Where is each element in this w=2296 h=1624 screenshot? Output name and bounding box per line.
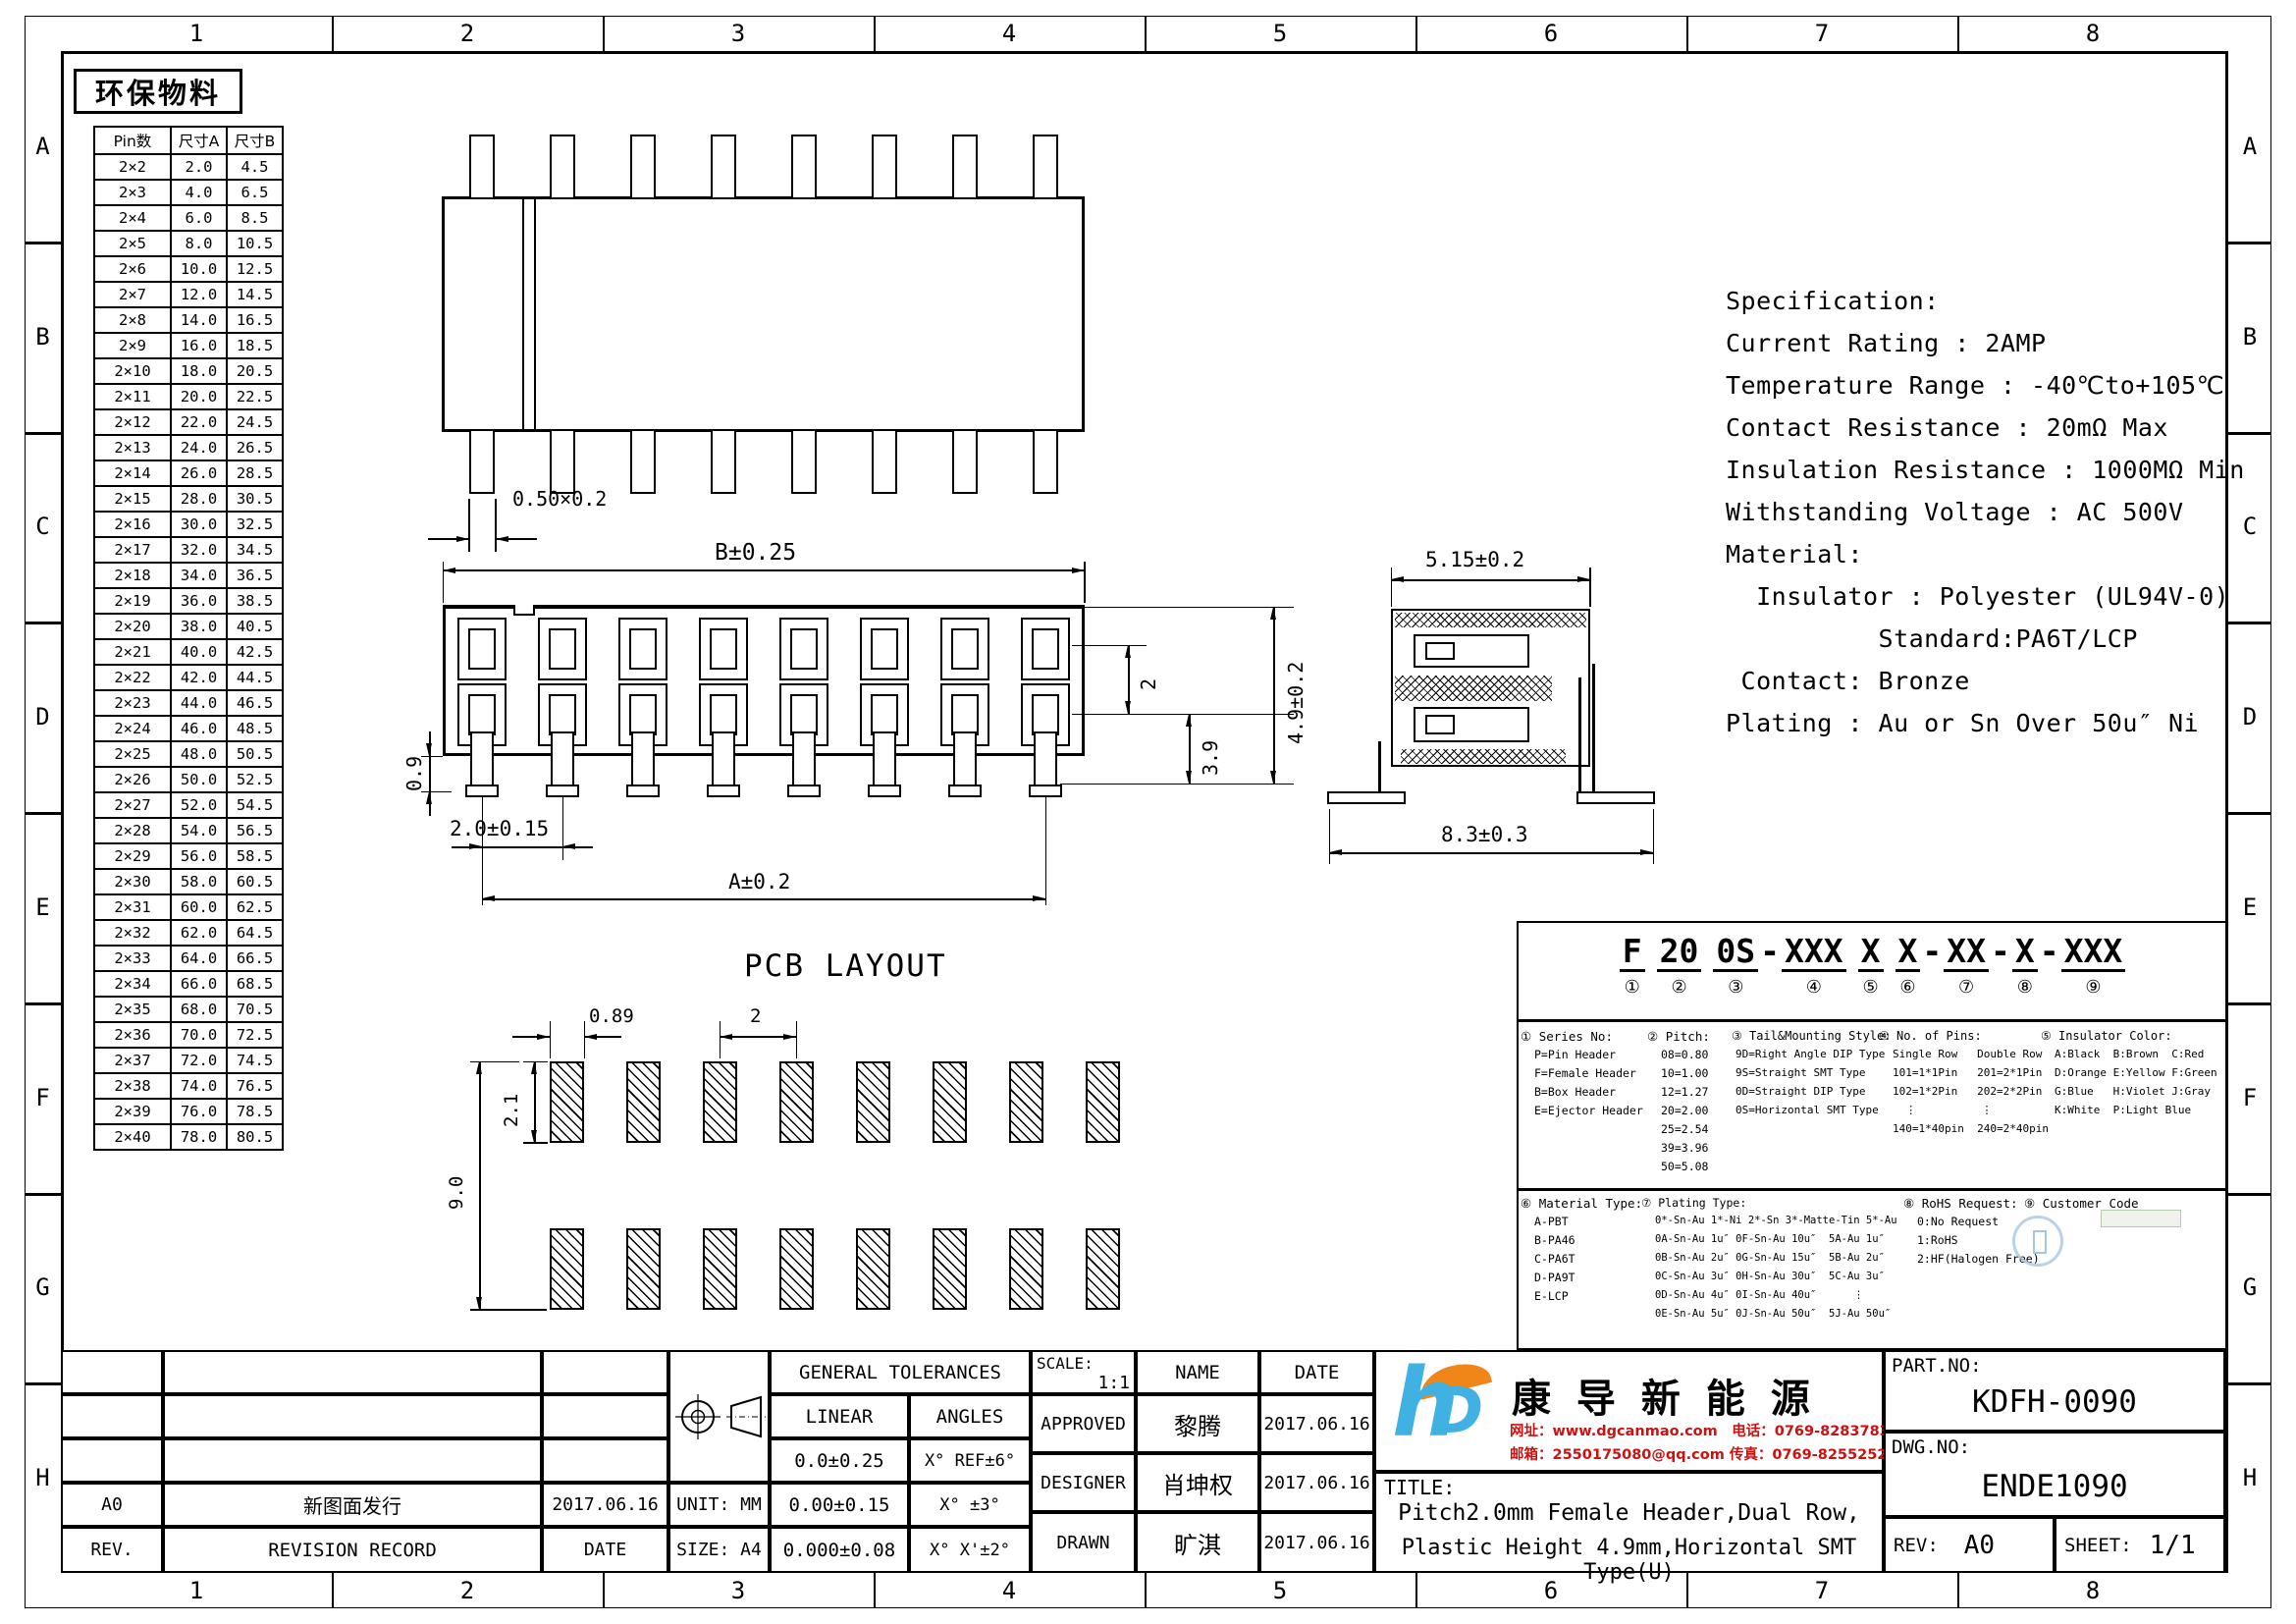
revision-date: 2017.06.16 bbox=[542, 1483, 668, 1527]
table-row: 2×2140.042.5 bbox=[94, 639, 283, 665]
legend-pitch-line-4: 25=2.54 bbox=[1661, 1122, 1708, 1136]
top-view-pin bbox=[630, 429, 656, 494]
dim-b: B±0.25 bbox=[715, 540, 796, 566]
table-row: 2×2854.056.5 bbox=[94, 818, 283, 843]
pcb-pad bbox=[550, 1228, 584, 1310]
spec-line-1: Current Rating : 2AMP bbox=[1726, 329, 2275, 371]
zone-row-A: A bbox=[25, 51, 61, 242]
zone-col-2: 2 bbox=[332, 1573, 603, 1608]
socket-opening bbox=[779, 618, 828, 680]
pin-table-cell: 26.5 bbox=[227, 435, 283, 460]
pin-table-cell: 38.0 bbox=[171, 614, 227, 639]
legend-pitch-line-1: 10=1.00 bbox=[1661, 1066, 1708, 1080]
legend-color-line-0: A:Black B:Brown C:Red bbox=[2055, 1048, 2204, 1060]
dwg-no-label: DWG.NO: bbox=[1892, 1436, 1970, 1458]
legend-tail-line-2: 0D=Straight DIP Type bbox=[1735, 1085, 1865, 1098]
table-row: 2×3772.074.5 bbox=[94, 1048, 283, 1073]
dim-side-w: 5.15±0.2 bbox=[1425, 548, 1524, 571]
pin-table-cell: 72.0 bbox=[171, 1048, 227, 1073]
pin-table-cell: 24.0 bbox=[171, 435, 227, 460]
pin-table-header: Pin数 bbox=[94, 127, 171, 154]
pin-table-cell: 16.0 bbox=[171, 333, 227, 358]
zone-col-8: 8 bbox=[1957, 1573, 2228, 1608]
pin-table-cell: 14.5 bbox=[227, 282, 283, 307]
pin-table-cell: 40.0 bbox=[171, 639, 227, 665]
zone-col-3: 3 bbox=[603, 1573, 874, 1608]
socket-opening bbox=[538, 618, 587, 680]
spec-line-10: Plating : Au or Sn Over 50u″ Ni bbox=[1726, 709, 2275, 751]
table-row: 2×3466.068.5 bbox=[94, 971, 283, 997]
pin-table-cell: 6.0 bbox=[171, 205, 227, 231]
pcb-pad bbox=[779, 1061, 814, 1143]
pin-table-cell: 24.5 bbox=[227, 409, 283, 435]
pin-table-cell: 36.0 bbox=[171, 588, 227, 614]
zone-col-6: 6 bbox=[1415, 16, 1686, 51]
pin-dimension-table: Pin数尺寸A尺寸B2×22.04.52×34.06.52×46.08.52×5… bbox=[93, 126, 284, 1151]
pin-table-cell: 12.0 bbox=[171, 282, 227, 307]
pin-table-cell: 46.5 bbox=[227, 690, 283, 716]
part-code-segment: XXX⑨ bbox=[2061, 935, 2126, 998]
pcb-pad bbox=[1009, 1228, 1043, 1310]
spec-line-8: Standard:PA6T/LCP bbox=[1726, 624, 2275, 667]
pcb-pad bbox=[626, 1061, 661, 1143]
pin-table-cell: 2×20 bbox=[94, 614, 171, 639]
table-row: 2×3160.062.5 bbox=[94, 894, 283, 920]
legend-series-line-1: F=Female Header bbox=[1534, 1066, 1636, 1080]
table-row: 2×1936.038.5 bbox=[94, 588, 283, 614]
company-contact-1: 网址：www.dgcanmao.com 电话：0769-82837833 bbox=[1510, 1420, 1899, 1440]
socket-opening bbox=[1021, 618, 1070, 680]
pin-table-cell: 28.0 bbox=[171, 486, 227, 512]
table-row: 2×2344.046.5 bbox=[94, 690, 283, 716]
pin-table-cell: 2×33 bbox=[94, 946, 171, 971]
pcb-pad bbox=[856, 1061, 890, 1143]
front-view-notch bbox=[513, 605, 535, 616]
pin-table-cell: 22.0 bbox=[171, 409, 227, 435]
pcb-pad bbox=[550, 1061, 584, 1143]
zone-tick bbox=[25, 242, 61, 244]
zone-tick bbox=[2228, 812, 2271, 815]
pin-table-cell: 2×35 bbox=[94, 997, 171, 1022]
pcb-layout-title: PCB LAYOUT bbox=[744, 948, 947, 984]
pcb-pad bbox=[1086, 1228, 1120, 1310]
zone-col-7: 7 bbox=[1686, 16, 1957, 51]
top-view-pin bbox=[791, 429, 817, 494]
pin-table-cell: 34.5 bbox=[227, 537, 283, 563]
front-view-pin-foot bbox=[707, 785, 740, 797]
pin-table-cell: 2×16 bbox=[94, 512, 171, 537]
pin-table-cell: 58.0 bbox=[171, 869, 227, 894]
legend-tail-line-0: 9D=Right Angle DIP Type bbox=[1735, 1048, 1885, 1060]
zone-tick bbox=[874, 16, 876, 51]
front-view-pin bbox=[873, 731, 896, 786]
part-code-segment: 20② bbox=[1657, 935, 1702, 998]
revision-header-record: REVISION RECORD bbox=[163, 1527, 542, 1573]
table-row: 2×3670.072.5 bbox=[94, 1022, 283, 1048]
pin-table-cell: 2×32 bbox=[94, 920, 171, 946]
table-row: 2×1324.026.5 bbox=[94, 435, 283, 460]
legend-pins-line-3: ⋮ ⋮ bbox=[1893, 1104, 1992, 1116]
front-view-pin bbox=[712, 731, 735, 786]
legend-material-line-3: D-PA9T bbox=[1534, 1271, 1575, 1284]
part-code-segment: 0S③ bbox=[1713, 935, 1758, 998]
legend-pitch-line-3: 20=2.00 bbox=[1661, 1104, 1708, 1117]
pin-table-cell: 58.5 bbox=[227, 843, 283, 869]
pin-table-cell: 60.5 bbox=[227, 869, 283, 894]
company-contact-2: 邮箱：2550175080@qq.com 传真：0769-82552527 bbox=[1510, 1443, 1896, 1464]
spec-line-3: Contact Resistance : 20mΩ Max bbox=[1726, 413, 2275, 456]
pin-table-cell: 60.0 bbox=[171, 894, 227, 920]
zone-tick bbox=[1957, 16, 1959, 51]
spec-line-9: Contact: Bronze bbox=[1726, 667, 2275, 709]
pin-table-cell: 8.5 bbox=[227, 205, 283, 231]
general-tolerances-title: GENERAL TOLERANCES bbox=[770, 1350, 1031, 1394]
pin-table-header: 尺寸A bbox=[171, 127, 227, 154]
pin-table-cell: 2×15 bbox=[94, 486, 171, 512]
dim-pad-span: 9.0 bbox=[446, 1176, 467, 1210]
legend-pitch-line-0: 08=0.80 bbox=[1661, 1048, 1708, 1061]
legend-series-header: ① Series No: bbox=[1521, 1029, 1613, 1044]
legend-pitch-line-2: 12=1.27 bbox=[1661, 1085, 1708, 1099]
top-view-pin bbox=[469, 429, 495, 494]
zone-tick bbox=[1686, 16, 1688, 51]
top-view-pin bbox=[469, 135, 495, 199]
pin-table-cell: 48.5 bbox=[227, 716, 283, 741]
pin-table-cell: 4.5 bbox=[227, 154, 283, 180]
revision-record: 新图面发行 bbox=[163, 1483, 542, 1527]
table-row: 2×1426.028.5 bbox=[94, 460, 283, 486]
front-view-pin-foot bbox=[546, 785, 579, 797]
zone-row-G: G bbox=[2228, 1193, 2271, 1383]
zone-col-5: 5 bbox=[1145, 16, 1415, 51]
table-row: 2×46.08.5 bbox=[94, 205, 283, 231]
zone-tick bbox=[332, 1573, 334, 1608]
zone-tick bbox=[2228, 1193, 2271, 1196]
pin-table-cell: 30.5 bbox=[227, 486, 283, 512]
legend-plating-line-5: 0E-Sn-Au 5u″ 0J-Sn-Au 50u″ 5J-Au 50u″ bbox=[1655, 1308, 1891, 1320]
pin-table-cell: 44.5 bbox=[227, 665, 283, 690]
pin-table-cell: 10.5 bbox=[227, 231, 283, 256]
zone-tick bbox=[1145, 1573, 1147, 1608]
pin-table-cell: 2×26 bbox=[94, 767, 171, 792]
part-no-value: KDFH-0090 bbox=[1884, 1384, 2225, 1420]
pin-table-cell: 2×11 bbox=[94, 384, 171, 409]
zone-col-3: 3 bbox=[603, 16, 874, 51]
front-view-pin-foot bbox=[626, 785, 660, 797]
legend-plating-line-3: 0C-Sn-Au 3u″ 0H-Sn-Au 30u″ 5C-Au 3u″ bbox=[1655, 1271, 1885, 1282]
pin-table-cell: 28.5 bbox=[227, 460, 283, 486]
zone-row-E: E bbox=[2228, 812, 2271, 1002]
pin-table-cell: 2×38 bbox=[94, 1073, 171, 1099]
pin-table-cell: 70.5 bbox=[227, 997, 283, 1022]
top-view-pin bbox=[791, 135, 817, 199]
projection-symbol-icon bbox=[672, 1378, 767, 1456]
pin-table-cell: 54.0 bbox=[171, 818, 227, 843]
spec-line-2: Temperature Range : -40℃to+105℃ bbox=[1726, 371, 2275, 413]
pin-table-cell: 2×8 bbox=[94, 307, 171, 333]
part-code-segment: XXX④ bbox=[1782, 935, 1846, 998]
pcb-pad bbox=[933, 1061, 967, 1143]
dim-pad-h: 2.1 bbox=[501, 1094, 522, 1127]
pin-table-cell: 2×7 bbox=[94, 282, 171, 307]
pin-table-cell: 68.0 bbox=[171, 997, 227, 1022]
table-row: 2×2242.044.5 bbox=[94, 665, 283, 690]
table-row: 2×1732.034.5 bbox=[94, 537, 283, 563]
zone-col-4: 4 bbox=[874, 1573, 1145, 1608]
table-row: 2×2752.054.5 bbox=[94, 792, 283, 818]
company-logo: h D bbox=[1392, 1360, 1500, 1463]
pin-table-cell: 32.0 bbox=[171, 537, 227, 563]
legend-pins-line-1: 101=1*1Pin 201=2*1Pin bbox=[1893, 1066, 2042, 1079]
pin-table-cell: 42.5 bbox=[227, 639, 283, 665]
dim-side-span: 8.3±0.3 bbox=[1441, 823, 1528, 846]
pin-table-cell: 74.0 bbox=[171, 1073, 227, 1099]
pin-table-cell: 2×24 bbox=[94, 716, 171, 741]
pin-table-cell: 20.5 bbox=[227, 358, 283, 384]
pcb-pad bbox=[779, 1228, 814, 1310]
front-view-pin bbox=[792, 731, 816, 786]
pin-table-cell: 54.5 bbox=[227, 792, 283, 818]
pin-table-cell: 2×22 bbox=[94, 665, 171, 690]
part-code-segment: X⑤ bbox=[1858, 935, 1884, 998]
legend-plating-line-4: 0D-Sn-Au 4u″ 0I-Sn-Au 40u″ ⋮ bbox=[1655, 1289, 1864, 1301]
table-row: 2×4078.080.5 bbox=[94, 1124, 283, 1150]
zone-tick bbox=[25, 432, 61, 435]
socket-opening bbox=[860, 618, 909, 680]
legend-material-line-4: E-LCP bbox=[1534, 1289, 1569, 1303]
legend-color-line-2: G:Blue H:Violet J:Gray bbox=[2055, 1085, 2211, 1098]
table-row: 2×2446.048.5 bbox=[94, 716, 283, 741]
legend-tail-line-3: 0S=Horizontal SMT Type bbox=[1735, 1104, 1879, 1116]
pin-table-cell: 2×6 bbox=[94, 256, 171, 282]
zone-tick bbox=[603, 16, 605, 51]
dim-pad-w: 0.89 bbox=[589, 1005, 634, 1027]
name-header: NAME bbox=[1136, 1350, 1259, 1394]
part-code-separator: - bbox=[1760, 935, 1780, 969]
table-row: 2×34.06.5 bbox=[94, 180, 283, 205]
pin-table-cell: 4.0 bbox=[171, 180, 227, 205]
table-row: 2×610.012.5 bbox=[94, 256, 283, 282]
pin-table-cell: 78.0 bbox=[171, 1124, 227, 1150]
front-view-pin bbox=[631, 731, 655, 786]
pin-table-cell: 64.0 bbox=[171, 946, 227, 971]
drawing-title-line2: Plastic Height 4.9mm,Horizontal SMT Type… bbox=[1374, 1536, 1884, 1585]
pin-table-cell: 2×23 bbox=[94, 690, 171, 716]
drawn-date: 2017.06.16 bbox=[1259, 1512, 1374, 1573]
table-row: 2×1528.030.5 bbox=[94, 486, 283, 512]
legend-material-header: ⑥ Material Type: bbox=[1521, 1196, 1642, 1211]
pin-table-cell: 2×13 bbox=[94, 435, 171, 460]
side-lead-right-foot bbox=[1576, 791, 1655, 804]
pin-table-cell: 62.0 bbox=[171, 920, 227, 946]
zone-col-1: 1 bbox=[61, 16, 332, 51]
top-view-pin bbox=[630, 135, 656, 199]
legend-plating-line-0: 0*-Sn-Au 1*-Ni 2*-Sn 3*-Matte-Tin 5*-Au bbox=[1655, 1215, 1897, 1226]
part-code-segment: X⑥ bbox=[1896, 935, 1921, 998]
legend-series-line-3: E=Ejector Header bbox=[1534, 1104, 1643, 1117]
zone-tick bbox=[2228, 1002, 2271, 1005]
zone-row-C: C bbox=[25, 432, 61, 623]
zone-row-A: A bbox=[2228, 51, 2271, 242]
revision-rev: A0 bbox=[61, 1483, 163, 1527]
pin-table-cell: 2×25 bbox=[94, 741, 171, 767]
zone-tick bbox=[1957, 1573, 1959, 1608]
zone-tick bbox=[2228, 242, 2271, 244]
pin-table-cell: 2×28 bbox=[94, 818, 171, 843]
part-code-separator: - bbox=[1991, 935, 2010, 969]
pin-table-cell: 40.5 bbox=[227, 614, 283, 639]
pin-table-cell: 16.5 bbox=[227, 307, 283, 333]
dim-09: 0.9 bbox=[402, 756, 426, 791]
size-cell: SIZE: A4 bbox=[668, 1527, 770, 1573]
table-row: 2×712.014.5 bbox=[94, 282, 283, 307]
engineering-drawing-page: 12345678 12345678 ABCDEFGH ABCDEFGH 环保物料… bbox=[0, 0, 2296, 1624]
dim-row-spacing: 2 bbox=[1137, 678, 1160, 690]
pin-table-cell: 2×5 bbox=[94, 231, 171, 256]
pin-table-cell: 36.5 bbox=[227, 563, 283, 588]
table-row: 2×3262.064.5 bbox=[94, 920, 283, 946]
socket-opening bbox=[618, 618, 667, 680]
pin-table-cell: 2×9 bbox=[94, 333, 171, 358]
specification-block: Specification:Current Rating : 2AMPTempe… bbox=[1726, 287, 2275, 751]
table-row: 2×1834.036.5 bbox=[94, 563, 283, 588]
pin-table-cell: 76.5 bbox=[227, 1073, 283, 1099]
dim-a: A±0.2 bbox=[728, 870, 790, 893]
pin-table-cell: 56.0 bbox=[171, 843, 227, 869]
top-view-pin bbox=[952, 135, 978, 199]
pin-table-cell: 2×34 bbox=[94, 971, 171, 997]
pin-table-cell: 2×21 bbox=[94, 639, 171, 665]
spec-line-4: Insulation Resistance : 1000MΩ Min bbox=[1726, 456, 2275, 498]
dim-pad-pitch: 2 bbox=[750, 1005, 761, 1027]
designer-label: DESIGNER bbox=[1031, 1453, 1136, 1512]
table-row: 2×3976.078.5 bbox=[94, 1099, 283, 1124]
side-lead-left-foot bbox=[1327, 791, 1406, 804]
zone-col-1: 1 bbox=[61, 1573, 332, 1608]
drawn-name: 旷淇 bbox=[1136, 1512, 1259, 1573]
pin-table-cell: 10.0 bbox=[171, 256, 227, 282]
top-view-pin bbox=[550, 429, 575, 494]
pin-table-cell: 2×40 bbox=[94, 1124, 171, 1150]
pin-table-cell: 2×18 bbox=[94, 563, 171, 588]
pin-table-cell: 72.5 bbox=[227, 1022, 283, 1048]
table-row: 2×1018.020.5 bbox=[94, 358, 283, 384]
pin-table-cell: 46.0 bbox=[171, 716, 227, 741]
pin-table-cell: 2×3 bbox=[94, 180, 171, 205]
table-row: 2×2650.052.5 bbox=[94, 767, 283, 792]
zone-tick bbox=[874, 1573, 876, 1608]
pin-table-cell: 2×39 bbox=[94, 1099, 171, 1124]
zone-row-D: D bbox=[25, 622, 61, 812]
legend-pins-line-0: Single Row Double Row bbox=[1893, 1048, 2042, 1060]
pin-table-cell: 52.5 bbox=[227, 767, 283, 792]
pcb-pad bbox=[856, 1228, 890, 1310]
legend-plating-line-2: 0B-Sn-Au 2u″ 0G-Sn-Au 15u″ 5B-Au 2u″ bbox=[1655, 1252, 1885, 1264]
pin-table-cell: 2×10 bbox=[94, 358, 171, 384]
front-view-pin-foot bbox=[465, 785, 499, 797]
pcb-pad bbox=[1086, 1061, 1120, 1143]
approved-date: 2017.06.16 bbox=[1259, 1394, 1374, 1453]
pin-table-cell: 50.5 bbox=[227, 741, 283, 767]
pin-table-cell: 8.0 bbox=[171, 231, 227, 256]
company-name: 康 导 新 能 源 bbox=[1512, 1367, 1875, 1424]
zone-row-H: H bbox=[25, 1382, 61, 1573]
sheet-cell: SHEET: 1/1 bbox=[2055, 1517, 2225, 1573]
revision-header-rev: REV. bbox=[61, 1527, 163, 1573]
pin-table-cell: 2×31 bbox=[94, 894, 171, 920]
pin-table-cell: 2×12 bbox=[94, 409, 171, 435]
legend-series-line-2: B=Box Header bbox=[1534, 1085, 1616, 1099]
legend-tail-header: ③ Tail&Mounting Style: bbox=[1732, 1029, 1891, 1043]
zone-tick bbox=[603, 1573, 605, 1608]
pin-table-cell: 56.5 bbox=[227, 818, 283, 843]
pin-table-cell: 20.0 bbox=[171, 384, 227, 409]
zone-tick bbox=[332, 16, 334, 51]
table-row: 2×22.04.5 bbox=[94, 154, 283, 180]
unit-cell: UNIT: MM bbox=[668, 1483, 770, 1527]
front-view-pin bbox=[551, 731, 574, 786]
top-view-pin bbox=[1033, 429, 1058, 494]
legend-series-line-0: P=Pin Header bbox=[1534, 1048, 1616, 1061]
legend-tail-line-1: 9S=Straight SMT Type bbox=[1735, 1066, 1865, 1079]
front-view-pin-foot bbox=[787, 785, 821, 797]
top-view-pin bbox=[872, 135, 897, 199]
pin-table-cell: 50.0 bbox=[171, 767, 227, 792]
front-view-pin-foot bbox=[868, 785, 901, 797]
zone-tick bbox=[25, 1002, 61, 1005]
spec-line-0: Specification: bbox=[1726, 287, 2275, 329]
legend-customer-header: ⑨ Customer Code bbox=[2024, 1196, 2139, 1211]
spec-line-6: Material: bbox=[1726, 540, 2275, 582]
legend-plating-header: ⑦ Plating Type: bbox=[1641, 1196, 1746, 1210]
pin-table-cell: 66.5 bbox=[227, 946, 283, 971]
socket-opening bbox=[940, 618, 989, 680]
table-row: 2×1120.022.5 bbox=[94, 384, 283, 409]
scale-cell: SCALE: 1:1 bbox=[1031, 1350, 1136, 1394]
table-row: 2×814.016.5 bbox=[94, 307, 283, 333]
pin-table-cell: 22.5 bbox=[227, 384, 283, 409]
pin-table-cell: 2×19 bbox=[94, 588, 171, 614]
table-row: 2×2956.058.5 bbox=[94, 843, 283, 869]
top-view-pin bbox=[711, 135, 736, 199]
spec-line-7: Insulator : Polyester (UL94V-0) bbox=[1726, 582, 2275, 624]
pin-table-cell: 80.5 bbox=[227, 1124, 283, 1150]
pin-table-cell: 2×14 bbox=[94, 460, 171, 486]
pin-table-cell: 38.5 bbox=[227, 588, 283, 614]
zone-tick bbox=[25, 622, 61, 624]
projection-symbol-cell bbox=[668, 1350, 770, 1483]
pin-table-cell: 74.5 bbox=[227, 1048, 283, 1073]
pcb-pad bbox=[703, 1061, 737, 1143]
legend-color-header: ⑤ Insulator Color: bbox=[2041, 1029, 2172, 1043]
table-row: 2×916.018.5 bbox=[94, 333, 283, 358]
zone-tick bbox=[1415, 16, 1417, 51]
legend-rohs-header: ⑧ RoHS Request: bbox=[1903, 1196, 2018, 1211]
socket-opening bbox=[457, 618, 507, 680]
top-view-pin bbox=[1033, 135, 1058, 199]
zone-row-H: H bbox=[2228, 1382, 2271, 1573]
part-code-segment: X⑧ bbox=[2012, 935, 2038, 998]
legend-pitch-line-5: 39=3.96 bbox=[1661, 1141, 1708, 1155]
zone-row-G: G bbox=[25, 1193, 61, 1383]
top-view-body bbox=[442, 196, 1085, 432]
table-row: 2×3568.070.5 bbox=[94, 997, 283, 1022]
table-row: 2×2548.050.5 bbox=[94, 741, 283, 767]
pcb-pad bbox=[1009, 1061, 1043, 1143]
table-row: 2×3364.066.5 bbox=[94, 946, 283, 971]
pin-table-cell: 32.5 bbox=[227, 512, 283, 537]
legend-pins-line-2: 102=1*2Pin 202=2*2Pin bbox=[1893, 1085, 2042, 1098]
